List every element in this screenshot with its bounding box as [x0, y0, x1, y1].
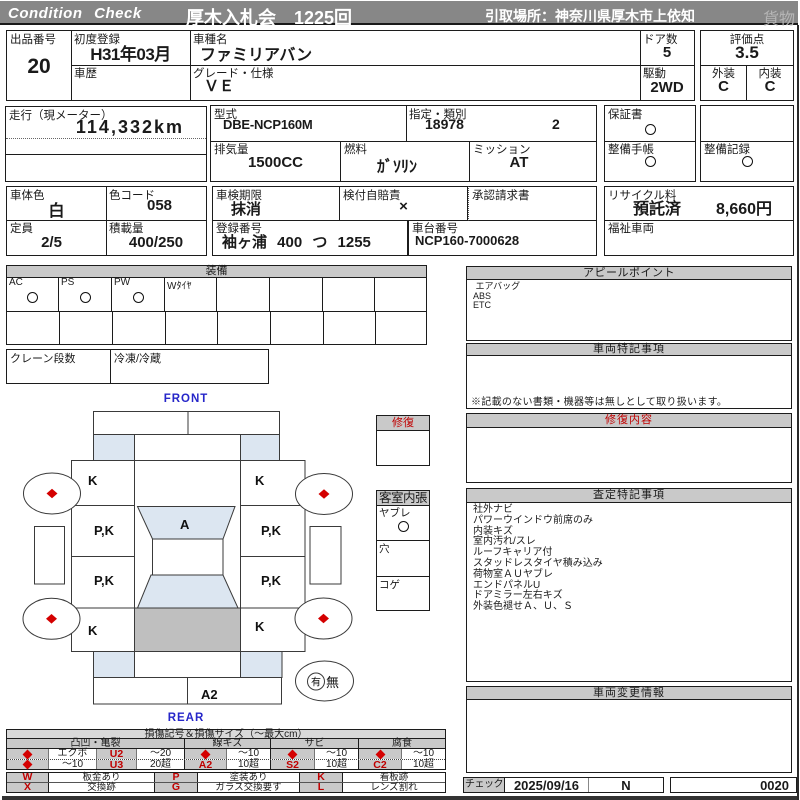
svg-text:P,K: P,K — [261, 573, 282, 588]
svg-text:P,K: P,K — [94, 523, 115, 538]
svg-text:K: K — [88, 473, 98, 488]
svg-text:K: K — [255, 619, 265, 634]
svg-text:P,K: P,K — [261, 523, 282, 538]
svg-text:無: 無 — [326, 675, 339, 690]
svg-text:有: 有 — [311, 676, 321, 689]
svg-text:A2: A2 — [201, 687, 218, 702]
svg-text:P,K: P,K — [94, 573, 115, 588]
svg-text:K: K — [88, 623, 98, 638]
svg-text:A: A — [180, 517, 190, 532]
svg-text:K: K — [255, 473, 265, 488]
